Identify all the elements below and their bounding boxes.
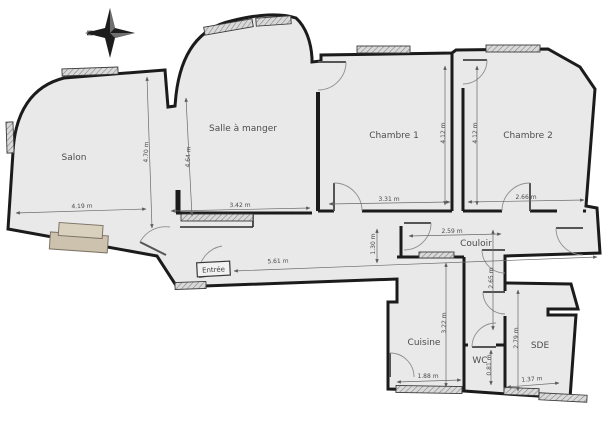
dim-sde-depth: 2.79 m [513, 327, 520, 348]
label-couloir: Couloir [460, 239, 492, 249]
window-salon-top [62, 67, 118, 76]
dim-chambre2-depth: 4.12 m [472, 122, 479, 143]
dim-chambre1-width: 3.31 m [378, 196, 399, 203]
compass: N [85, 8, 135, 58]
label-cuisine: Cuisine [408, 338, 441, 348]
compass-north-label: N [86, 30, 95, 36]
dim-cuisine-width: 1.88 m [417, 373, 438, 380]
dim-entree-length: 5.61 m [267, 258, 288, 266]
label-salon: Salon [62, 153, 87, 163]
dim-hall-height: 1.30 m [370, 233, 377, 254]
window-chambre1 [357, 46, 410, 53]
dim-cuisine-depth: 3.22 m [441, 312, 448, 333]
label-chambre1: Chambre 1 [369, 131, 419, 141]
glazing-cuisine-couloir [419, 252, 454, 258]
floor-plan-page: N 4.19 m 4.70 m 4.64 m 3.42 m 3.31 m 4.1… [0, 0, 604, 427]
floor-plan-canvas: N 4.19 m 4.70 m 4.64 m 3.42 m 3.31 m 4.1… [0, 0, 604, 427]
svg-text:Entrée: Entrée [202, 265, 225, 274]
dim-salon-width: 4.19 m [71, 203, 92, 211]
label-sde: SDE [531, 341, 550, 351]
dim-sde-width: 1.37 m [521, 375, 543, 383]
label-entree: Entrée [197, 261, 231, 277]
label-wc: WC [472, 356, 487, 366]
dim-couloir-width: 2.59 m [441, 228, 462, 235]
window-salon-left [6, 122, 14, 153]
dim-chambre1-depth: 4.12 m [440, 122, 447, 143]
dim-salle-width: 3.42 m [229, 202, 250, 209]
dim-chambre2-width: 2.66 m [515, 194, 536, 201]
label-chambre2: Chambre 2 [503, 131, 553, 141]
window-sde [539, 393, 587, 403]
window-wc [504, 387, 539, 395]
dim-salon-depth: 4.70 m [143, 141, 151, 162]
window-chambre2 [486, 45, 540, 52]
label-salle-a-manger: Salle à manger [209, 124, 277, 134]
window-cuisine [396, 385, 462, 393]
window-entree [175, 281, 206, 289]
dim-couloir-depth: 2.65 m [488, 267, 495, 288]
dim-salle-depth: 4.64 m [184, 146, 192, 168]
